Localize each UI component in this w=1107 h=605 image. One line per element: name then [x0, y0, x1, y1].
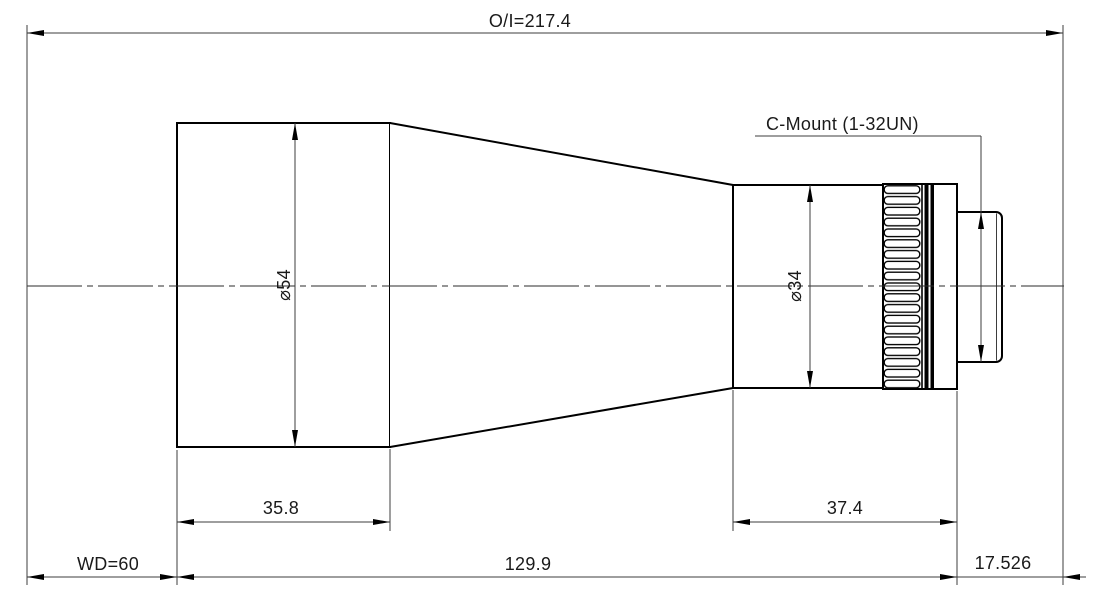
flange-focal-distance-label: 17.526: [975, 553, 1032, 573]
overall-length-label: O/I=217.4: [489, 11, 571, 31]
arrowhead: [373, 519, 390, 525]
arrowhead: [733, 519, 750, 525]
mid-length-label: 129.9: [505, 554, 552, 574]
arrowhead: [160, 574, 177, 580]
working-distance-label: WD=60: [77, 554, 139, 574]
arrowhead: [1063, 574, 1080, 580]
lens-body: [177, 123, 1002, 447]
arrowhead: [27, 30, 44, 36]
arrowhead: [177, 519, 194, 525]
lens-technical-drawing: O/I=217.4 C-Mount (1-32UN) ⌀54 ⌀34 35.8 …: [0, 0, 1107, 605]
arrowhead: [27, 574, 44, 580]
arrowhead: [940, 574, 957, 580]
taper-cone: [390, 123, 733, 447]
front-barrel-length-label: 35.8: [263, 498, 299, 518]
c-mount-label: C-Mount (1-32UN): [766, 114, 919, 134]
drawing-canvas: O/I=217.4 C-Mount (1-32UN) ⌀54 ⌀34 35.8 …: [0, 0, 1107, 605]
arrowhead: [177, 574, 194, 580]
front-diameter-label: ⌀54: [274, 269, 294, 301]
rear-diameter-label: ⌀34: [785, 270, 805, 302]
arrowhead: [1046, 30, 1063, 36]
arrowhead: [940, 519, 957, 525]
rear-barrel-length-label: 37.4: [827, 498, 863, 518]
c-mount-thread: [957, 212, 1002, 362]
